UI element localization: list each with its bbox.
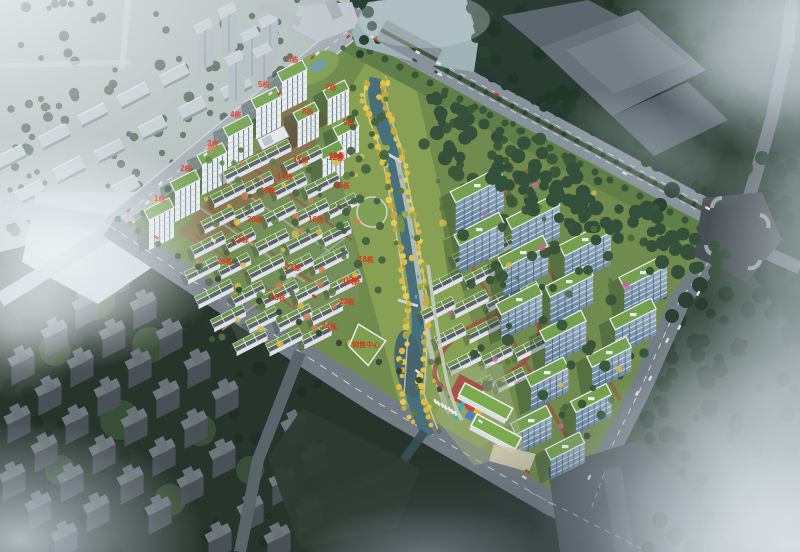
svg-text:销售中心: 销售中心 [351,340,380,349]
svg-text:24栋: 24栋 [321,322,337,331]
